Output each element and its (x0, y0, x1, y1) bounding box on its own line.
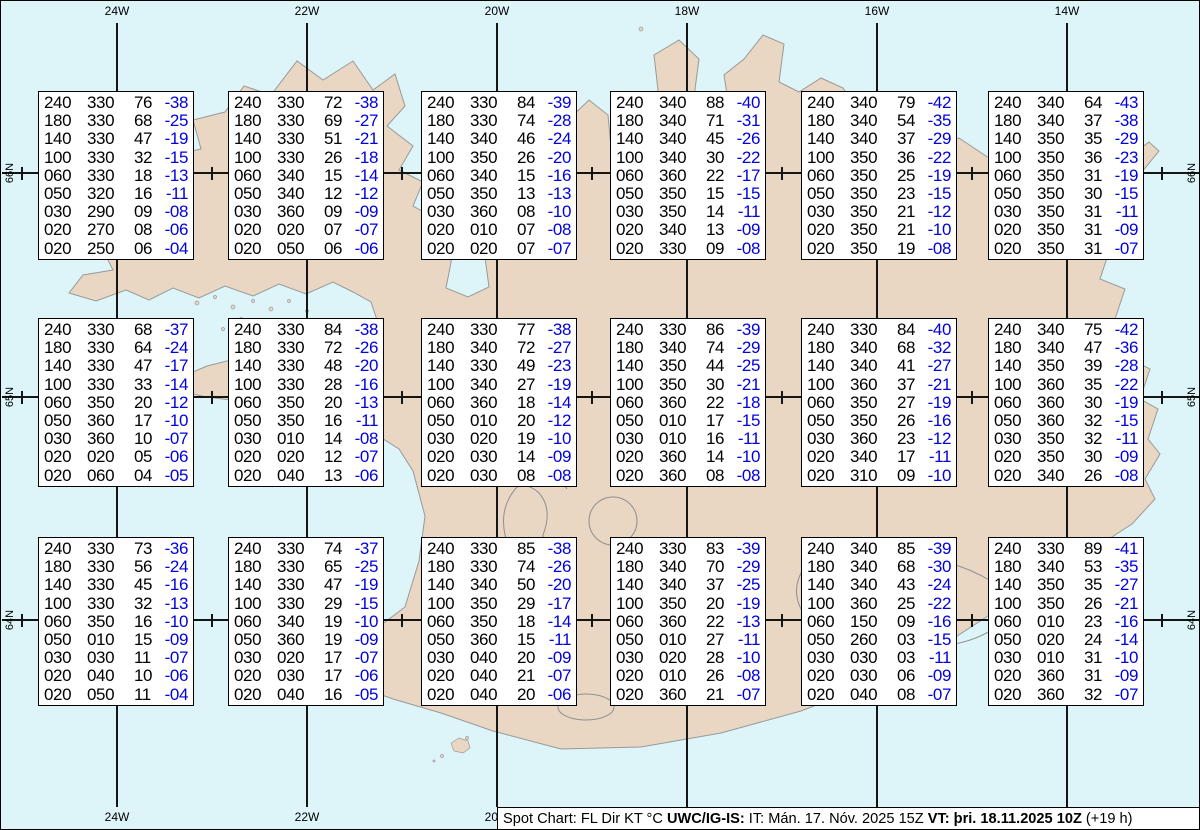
flight-level: 180 (616, 339, 659, 357)
wind-direction: 030 (850, 667, 897, 685)
temperature: -21 (1112, 595, 1140, 613)
forecast-row: 06035020-12 (44, 394, 190, 412)
spot-forecast-box: 24034079-4218034054-3514034037-291003503… (801, 91, 957, 260)
flight-level: 140 (807, 576, 850, 594)
wind-direction: 340 (470, 130, 517, 148)
wind-speed: 16 (134, 613, 162, 631)
longitude-minor-tick (781, 614, 783, 627)
wind-direction: 340 (1037, 339, 1084, 357)
flight-level: 030 (427, 430, 470, 448)
flight-level: 060 (994, 167, 1037, 185)
wind-speed: 11 (134, 686, 162, 704)
flight-level: 140 (234, 576, 277, 594)
wind-direction: 310 (850, 467, 897, 485)
wind-direction: 340 (659, 558, 706, 576)
wind-speed: 09 (706, 240, 734, 258)
wind-speed: 21 (517, 667, 545, 685)
flight-level: 020 (616, 667, 659, 685)
flight-level: 140 (616, 357, 659, 375)
wind-direction: 340 (1037, 321, 1084, 339)
forecast-row: 06001023-16 (994, 613, 1140, 631)
temperature: -06 (352, 467, 380, 485)
forecast-row: 10035020-19 (616, 595, 762, 613)
wind-direction: 020 (87, 448, 134, 466)
wind-direction: 030 (87, 649, 134, 667)
temperature: -14 (545, 613, 573, 631)
temperature: -29 (1112, 130, 1140, 148)
forecast-row: 14034050-20 (427, 576, 573, 594)
wind-direction: 340 (659, 149, 706, 167)
forecast-row: 02004013-06 (234, 467, 380, 485)
forecast-row: 02036021-07 (616, 686, 762, 704)
temperature: -22 (734, 149, 762, 167)
forecast-row: 05035023-15 (807, 185, 953, 203)
forecast-row: 03002019-10 (427, 430, 573, 448)
temperature: -35 (925, 112, 953, 130)
flight-level: 060 (807, 167, 850, 185)
wind-direction: 360 (1037, 667, 1084, 685)
forecast-row: 02004016-05 (234, 686, 380, 704)
wind-speed: 39 (1084, 357, 1112, 375)
wind-speed: 08 (134, 221, 162, 239)
longitude-minor-tick (1161, 391, 1163, 404)
wind-direction: 060 (87, 467, 134, 485)
forecast-row: 14033047-17 (44, 357, 190, 375)
flight-level: 180 (807, 558, 850, 576)
wind-speed: 69 (324, 112, 352, 130)
wind-direction: 330 (87, 112, 134, 130)
temperature: -05 (352, 686, 380, 704)
flight-level: 020 (234, 240, 277, 258)
flight-level: 240 (616, 94, 659, 112)
forecast-row: 24034085-39 (807, 540, 953, 558)
flight-level: 100 (44, 149, 87, 167)
wind-direction: 010 (277, 430, 324, 448)
forecast-row: 24034079-42 (807, 94, 953, 112)
temperature: -09 (1112, 221, 1140, 239)
forecast-row: 24033072-38 (234, 94, 380, 112)
flight-level: 240 (44, 321, 87, 339)
wind-direction: 360 (470, 203, 517, 221)
flight-level: 030 (234, 203, 277, 221)
wind-direction: 330 (87, 130, 134, 148)
wind-direction: 350 (1037, 221, 1084, 239)
flight-level: 100 (994, 376, 1037, 394)
forecast-row: 03029009-08 (44, 203, 190, 221)
wind-direction: 340 (850, 357, 897, 375)
flight-level: 020 (994, 448, 1037, 466)
flight-level: 180 (616, 558, 659, 576)
wind-speed: 26 (1084, 595, 1112, 613)
spot-forecast-box: 24033074-3718033065-2514033047-191003302… (228, 537, 384, 706)
forecast-row: 02036032-07 (994, 686, 1140, 704)
longitude-label: 24W (105, 4, 130, 18)
wind-direction: 330 (277, 339, 324, 357)
flight-level: 050 (807, 631, 850, 649)
wind-speed: 45 (134, 576, 162, 594)
flight-level: 030 (44, 649, 87, 667)
wind-direction: 360 (87, 412, 134, 430)
wind-direction: 010 (1037, 613, 1084, 631)
wind-direction: 350 (470, 149, 517, 167)
wind-direction: 350 (659, 357, 706, 375)
temperature: -06 (162, 221, 190, 239)
temperature: -09 (162, 631, 190, 649)
temperature: -05 (162, 467, 190, 485)
wind-speed: 17 (134, 412, 162, 430)
wind-speed: 26 (897, 412, 925, 430)
flight-level: 050 (616, 185, 659, 203)
flight-level: 100 (234, 149, 277, 167)
flight-level: 020 (234, 221, 277, 239)
wind-speed: 41 (897, 357, 925, 375)
wind-direction: 350 (850, 203, 897, 221)
flight-level: 100 (44, 595, 87, 613)
forecast-row: 03035021-12 (807, 203, 953, 221)
flight-level: 180 (994, 112, 1037, 130)
forecast-row: 10035030-21 (616, 376, 762, 394)
forecast-row: 24033068-37 (44, 321, 190, 339)
forecast-row: 18034074-29 (616, 339, 762, 357)
wind-speed: 35 (1084, 130, 1112, 148)
wind-direction: 350 (1037, 595, 1084, 613)
wind-speed: 03 (897, 631, 925, 649)
wind-direction: 330 (87, 595, 134, 613)
flight-level: 050 (234, 631, 277, 649)
wind-speed: 31 (1084, 221, 1112, 239)
wind-speed: 73 (134, 540, 162, 558)
flight-level: 020 (807, 240, 850, 258)
flight-level: 100 (994, 149, 1037, 167)
forecast-row: 06033018-13 (44, 167, 190, 185)
forecast-row: 03003003-11 (807, 649, 953, 667)
forecast-row: 03035031-11 (994, 203, 1140, 221)
wind-direction: 350 (1037, 576, 1084, 594)
wind-direction: 040 (470, 649, 517, 667)
forecast-row: 10036035-22 (994, 376, 1140, 394)
forecast-row: 03002028-10 (616, 649, 762, 667)
wind-speed: 30 (1084, 394, 1112, 412)
temperature: -31 (734, 112, 762, 130)
wind-direction: 340 (850, 448, 897, 466)
temperature: -16 (352, 376, 380, 394)
wind-speed: 50 (517, 576, 545, 594)
wind-direction: 290 (87, 203, 134, 221)
temperature: -14 (352, 167, 380, 185)
flight-level: 140 (427, 576, 470, 594)
temperature: -12 (352, 185, 380, 203)
forecast-row: 06035016-10 (44, 613, 190, 631)
wind-speed: 20 (517, 649, 545, 667)
wind-speed: 13 (706, 221, 734, 239)
forecast-row: 24033083-39 (616, 540, 762, 558)
spot-forecast-box: 24033072-3818033069-2714033051-211003302… (228, 91, 384, 260)
flight-level: 180 (994, 558, 1037, 576)
forecast-row: 03035032-11 (994, 430, 1140, 448)
temperature: -09 (545, 448, 573, 466)
flight-level: 020 (616, 221, 659, 239)
wind-speed: 22 (706, 394, 734, 412)
temperature: -10 (545, 203, 573, 221)
forecast-row: 14033047-19 (44, 130, 190, 148)
wind-speed: 53 (1084, 558, 1112, 576)
forecast-row: 24034064-43 (994, 94, 1140, 112)
flight-level: 180 (234, 339, 277, 357)
status-source: UWC/IG-IS: (667, 811, 745, 827)
wind-speed: 46 (517, 130, 545, 148)
wind-speed: 14 (706, 448, 734, 466)
flight-level: 030 (807, 649, 850, 667)
temperature: -09 (352, 203, 380, 221)
forecast-row: 02033009-08 (616, 240, 762, 258)
wind-speed: 17 (897, 448, 925, 466)
wind-direction: 340 (659, 221, 706, 239)
temperature: -10 (1112, 649, 1140, 667)
wind-speed: 28 (706, 649, 734, 667)
longitude-label: 18W (675, 4, 700, 18)
temperature: -16 (162, 576, 190, 594)
wind-direction: 340 (850, 576, 897, 594)
wind-direction: 330 (277, 112, 324, 130)
forecast-row: 05036032-15 (994, 412, 1140, 430)
temperature: -21 (352, 130, 380, 148)
wind-direction: 330 (87, 149, 134, 167)
wind-speed: 68 (134, 112, 162, 130)
wind-speed: 13 (324, 467, 352, 485)
flight-level: 020 (44, 448, 87, 466)
wind-direction: 020 (277, 221, 324, 239)
wind-speed: 86 (706, 321, 734, 339)
forecast-row: 05035013-13 (427, 185, 573, 203)
wind-speed: 17 (706, 412, 734, 430)
wind-speed: 09 (134, 203, 162, 221)
wind-speed: 10 (134, 430, 162, 448)
wind-speed: 72 (517, 339, 545, 357)
wind-direction: 350 (1037, 430, 1084, 448)
wind-speed: 36 (1084, 149, 1112, 167)
spot-forecast-box: 24033086-3918034074-2914035044-251003503… (610, 318, 766, 487)
wind-speed: 75 (1084, 321, 1112, 339)
wind-speed: 85 (517, 540, 545, 558)
wind-speed: 88 (706, 94, 734, 112)
temperature: -39 (734, 540, 762, 558)
wind-speed: 16 (134, 185, 162, 203)
flight-level: 180 (807, 112, 850, 130)
wind-speed: 85 (897, 540, 925, 558)
wind-speed: 15 (517, 167, 545, 185)
flight-level: 020 (994, 467, 1037, 485)
wind-direction: 330 (470, 540, 517, 558)
temperature: -08 (545, 221, 573, 239)
forecast-row: 03003011-07 (44, 649, 190, 667)
wind-direction: 340 (470, 576, 517, 594)
wind-speed: 26 (706, 667, 734, 685)
wind-direction: 350 (1037, 167, 1084, 185)
forecast-row: 05035015-15 (616, 185, 762, 203)
flight-level: 100 (807, 149, 850, 167)
forecast-row: 24033084-40 (807, 321, 953, 339)
temperature: -15 (162, 149, 190, 167)
forecast-row: 10033032-13 (44, 595, 190, 613)
flight-level: 140 (994, 357, 1037, 375)
flight-level: 060 (427, 394, 470, 412)
temperature: -15 (734, 185, 762, 203)
temperature: -24 (162, 339, 190, 357)
temperature: -22 (1112, 376, 1140, 394)
wind-speed: 16 (706, 430, 734, 448)
temperature: -19 (734, 595, 762, 613)
wind-direction: 330 (87, 376, 134, 394)
flight-level: 140 (234, 130, 277, 148)
forecast-row: 10034030-22 (616, 149, 762, 167)
wind-speed: 84 (897, 321, 925, 339)
temperature: -08 (734, 240, 762, 258)
wind-speed: 05 (134, 448, 162, 466)
longitude-minor-tick (401, 167, 403, 180)
temperature: -09 (545, 649, 573, 667)
wind-speed: 31 (1084, 667, 1112, 685)
forecast-row: 18033064-24 (44, 339, 190, 357)
flight-level: 140 (44, 357, 87, 375)
wind-speed: 07 (517, 240, 545, 258)
forecast-row: 14034041-27 (807, 357, 953, 375)
flight-level: 060 (807, 394, 850, 412)
wind-direction: 340 (850, 540, 897, 558)
flight-level: 020 (234, 667, 277, 685)
wind-direction: 340 (659, 112, 706, 130)
flight-level: 060 (234, 167, 277, 185)
wind-speed: 14 (324, 430, 352, 448)
flight-level: 140 (44, 576, 87, 594)
wind-direction: 360 (470, 631, 517, 649)
wind-speed: 16 (324, 412, 352, 430)
flight-level: 100 (994, 595, 1037, 613)
wind-speed: 04 (134, 467, 162, 485)
forecast-row: 10034027-19 (427, 376, 573, 394)
temperature: -11 (925, 649, 953, 667)
temperature: -08 (734, 667, 762, 685)
temperature: -38 (545, 540, 573, 558)
flight-level: 100 (234, 376, 277, 394)
temperature: -15 (1112, 412, 1140, 430)
temperature: -12 (925, 430, 953, 448)
wind-direction: 350 (1037, 240, 1084, 258)
wind-speed: 27 (517, 376, 545, 394)
wind-speed: 68 (897, 339, 925, 357)
temperature: -26 (545, 558, 573, 576)
flight-level: 180 (44, 558, 87, 576)
flight-level: 100 (616, 149, 659, 167)
temperature: -20 (545, 576, 573, 594)
latitude-label-text: 64N (1186, 610, 1198, 630)
forecast-row: 06035027-19 (807, 394, 953, 412)
flight-level: 240 (44, 94, 87, 112)
forecast-row: 05001015-09 (44, 631, 190, 649)
wind-speed: 18 (517, 394, 545, 412)
wind-speed: 07 (517, 221, 545, 239)
wind-direction: 330 (470, 94, 517, 112)
wind-direction: 360 (277, 203, 324, 221)
forecast-row: 14035035-27 (994, 576, 1140, 594)
wind-speed: 08 (706, 467, 734, 485)
flight-level: 060 (427, 613, 470, 631)
wind-direction: 010 (87, 631, 134, 649)
temperature: -07 (1112, 240, 1140, 258)
forecast-row: 14034045-26 (616, 130, 762, 148)
forecast-row: 02001007-08 (427, 221, 573, 239)
flight-level: 020 (807, 686, 850, 704)
flight-level: 240 (44, 540, 87, 558)
wind-direction: 350 (1037, 130, 1084, 148)
forecast-row: 24033086-39 (616, 321, 762, 339)
forecast-row: 18034053-35 (994, 558, 1140, 576)
temperature: -20 (352, 357, 380, 375)
wind-speed: 30 (1084, 185, 1112, 203)
flight-level: 020 (994, 221, 1037, 239)
wind-direction: 350 (850, 394, 897, 412)
forecast-row: 24033077-38 (427, 321, 573, 339)
wind-speed: 68 (134, 321, 162, 339)
temperature: -08 (734, 467, 762, 485)
flight-level: 060 (616, 613, 659, 631)
flight-level: 060 (44, 167, 87, 185)
longitude-minor-tick (781, 391, 783, 404)
temperature: -30 (925, 558, 953, 576)
wind-speed: 31 (1084, 203, 1112, 221)
wind-speed: 07 (324, 221, 352, 239)
forecast-row: 24034075-42 (994, 321, 1140, 339)
flight-level: 020 (234, 686, 277, 704)
temperature: -07 (925, 686, 953, 704)
flight-level: 030 (616, 203, 659, 221)
forecast-row: 02004010-06 (44, 667, 190, 685)
forecast-row: 18033056-24 (44, 558, 190, 576)
wind-speed: 37 (897, 376, 925, 394)
wind-speed: 06 (897, 667, 925, 685)
wind-direction: 020 (659, 649, 706, 667)
forecast-row: 05036017-10 (44, 412, 190, 430)
temperature: -06 (352, 240, 380, 258)
forecast-row: 18033068-25 (44, 112, 190, 130)
longitude-minor-tick (591, 167, 593, 180)
flight-level: 100 (427, 376, 470, 394)
forecast-row: 05001027-11 (616, 631, 762, 649)
wind-direction: 360 (1037, 686, 1084, 704)
flight-level: 240 (427, 540, 470, 558)
wind-speed: 21 (897, 203, 925, 221)
wind-direction: 330 (87, 94, 134, 112)
forecast-row: 02036031-09 (994, 667, 1140, 685)
wind-direction: 010 (1037, 649, 1084, 667)
wind-direction: 350 (1037, 149, 1084, 167)
temperature: -11 (352, 412, 380, 430)
flight-level: 020 (44, 467, 87, 485)
forecast-row: 03036009-09 (234, 203, 380, 221)
wind-direction: 330 (470, 558, 517, 576)
wind-speed: 32 (1084, 686, 1112, 704)
wind-speed: 15 (517, 631, 545, 649)
temperature: -36 (162, 540, 190, 558)
wind-direction: 340 (277, 613, 324, 631)
wind-direction: 360 (659, 467, 706, 485)
forecast-row: 18033074-26 (427, 558, 573, 576)
wind-direction: 340 (470, 376, 517, 394)
temperature: -38 (162, 94, 190, 112)
wind-direction: 010 (470, 412, 517, 430)
forecast-row: 24033073-36 (44, 540, 190, 558)
latitude-label-text: 66N (1186, 163, 1198, 183)
latitude-label-text: 65N (4, 387, 16, 407)
